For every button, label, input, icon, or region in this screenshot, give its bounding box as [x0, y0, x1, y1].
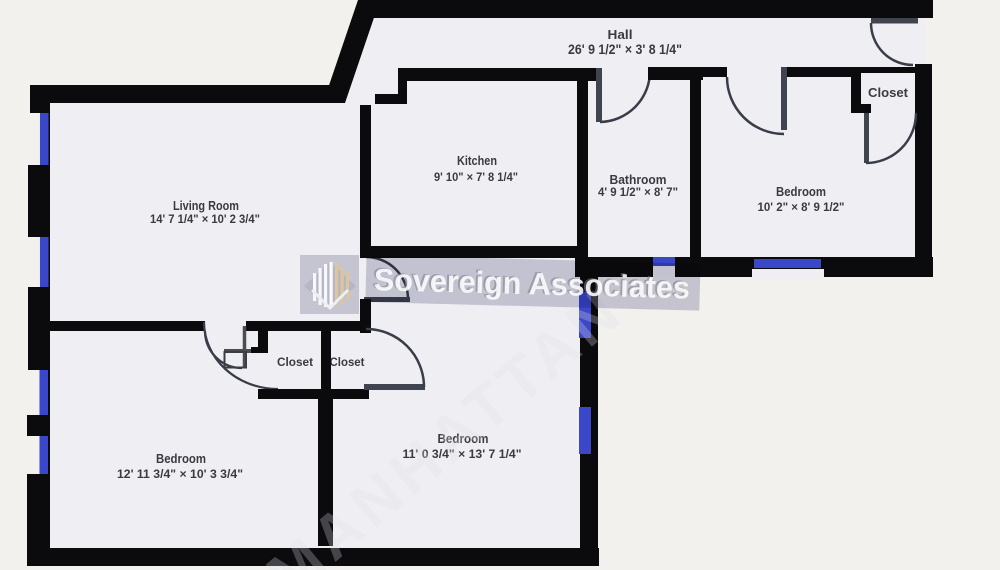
svg-text:Bedroom: Bedroom: [156, 451, 206, 466]
svg-text:Hall: Hall: [608, 27, 633, 42]
svg-text:14' 7 1/4" × 10' 2 3/4": 14' 7 1/4" × 10' 2 3/4": [150, 212, 260, 226]
svg-text:Living Room: Living Room: [173, 199, 239, 213]
svg-text:Bathroom: Bathroom: [610, 173, 667, 187]
svg-text:Kitchen: Kitchen: [457, 154, 497, 168]
svg-text:Bedroom: Bedroom: [776, 184, 826, 199]
svg-text:9' 10" × 7' 8 1/4": 9' 10" × 7' 8 1/4": [434, 172, 518, 184]
svg-text:12' 11 3/4" × 10' 3 3/4": 12' 11 3/4" × 10' 3 3/4": [117, 467, 243, 481]
svg-text:10' 2" × 8' 9 1/2": 10' 2" × 8' 9 1/2": [758, 202, 845, 214]
svg-text:Closet: Closet: [868, 86, 909, 100]
svg-text:Closet: Closet: [330, 355, 365, 369]
svg-text:4' 9 1/2" × 8' 7": 4' 9 1/2" × 8' 7": [598, 187, 678, 199]
svg-text:26' 9 1/2" × 3' 8 1/4": 26' 9 1/2" × 3' 8 1/4": [568, 42, 682, 57]
svg-text:Closet: Closet: [277, 355, 313, 369]
